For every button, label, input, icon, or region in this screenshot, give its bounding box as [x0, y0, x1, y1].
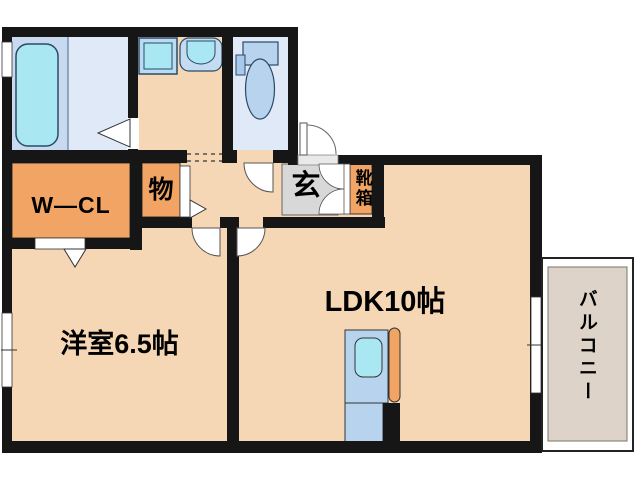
bathroom-window	[2, 42, 12, 77]
room-label-ldk: LDK10帖	[240, 287, 530, 319]
wall-segment	[372, 155, 384, 228]
wall-segment	[142, 217, 192, 228]
refrigerator-space	[345, 403, 383, 443]
toilet-paper-holder	[236, 55, 245, 75]
room-label-storage: 物	[140, 177, 182, 205]
wall-segment	[222, 150, 237, 163]
wall-segment	[383, 403, 400, 443]
room-label-shoebox: 靴箱	[352, 169, 371, 209]
wall-segment	[263, 217, 385, 228]
floorplan-image: W—CL 物 玄 靴箱 洋室6.5帖 LDK10帖 バルコニー	[0, 0, 640, 480]
wcl-door-opening	[35, 238, 85, 249]
wall-segment	[2, 441, 542, 453]
kitchen-counter-edge	[389, 328, 400, 402]
wall-segment	[288, 27, 298, 165]
entrance-door-leaf	[300, 123, 307, 155]
floorplan-svg	[0, 0, 640, 480]
vanity-sink-bowl	[187, 41, 215, 64]
entrance-door	[298, 123, 338, 165]
wall-segment	[2, 27, 298, 37]
wall-segment	[85, 238, 142, 249]
bathtub	[16, 44, 58, 146]
entrance-threshold	[298, 155, 338, 165]
wall-segment	[128, 27, 138, 118]
washing-machine-pan-inner	[144, 43, 172, 69]
room-label-western-room: 洋室6.5帖	[12, 330, 227, 360]
wall-segment	[273, 150, 298, 163]
entrance-door-swing-arc	[307, 125, 336, 154]
wall-segment	[2, 150, 187, 163]
room-label-entrance: 玄	[280, 171, 332, 203]
room-label-walk-in-closet: W—CL	[12, 193, 130, 218]
room-label-balcony: バルコニー	[575, 289, 596, 404]
wall-segment	[2, 238, 37, 249]
wall-segment	[222, 27, 233, 163]
wall-segment	[338, 155, 538, 165]
toilet-bowl	[246, 59, 275, 119]
kitchen-sink	[355, 338, 382, 377]
